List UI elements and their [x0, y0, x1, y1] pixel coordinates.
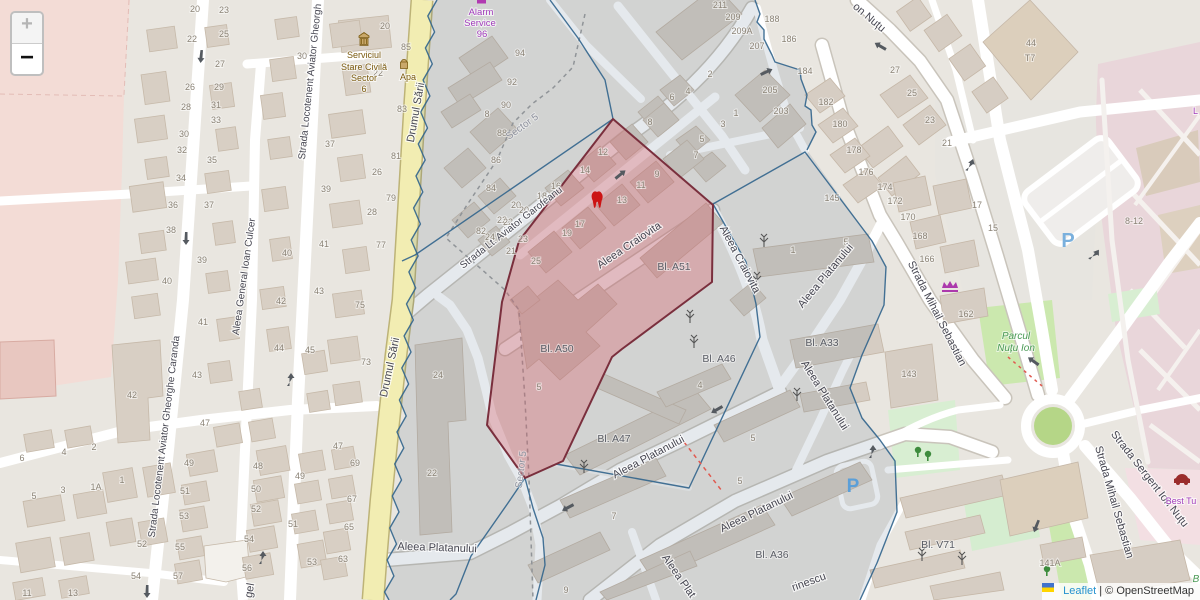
svg-text:188: 188: [764, 14, 779, 24]
svg-text:P: P: [1061, 230, 1074, 252]
svg-text:30: 30: [297, 51, 307, 61]
svg-text:205: 205: [762, 85, 777, 95]
svg-text:29: 29: [214, 82, 224, 92]
svg-text:209: 209: [725, 12, 740, 22]
svg-text:5: 5: [536, 382, 541, 392]
svg-text:172: 172: [887, 196, 902, 206]
svg-text:1: 1: [733, 108, 738, 118]
svg-text:56: 56: [242, 563, 252, 573]
svg-text:77: 77: [376, 240, 386, 250]
svg-text:44: 44: [274, 343, 284, 353]
svg-text:3: 3: [720, 119, 725, 129]
svg-text:50: 50: [251, 484, 261, 494]
svg-text:Best Tu: Best Tu: [1166, 496, 1197, 506]
svg-text:47: 47: [200, 418, 210, 428]
svg-text:6: 6: [669, 92, 674, 102]
svg-text:8: 8: [647, 117, 652, 127]
svg-text:21: 21: [506, 246, 516, 256]
svg-text:25: 25: [907, 88, 917, 98]
svg-text:13: 13: [617, 195, 627, 205]
svg-text:Bl. A47: Bl. A47: [597, 433, 630, 445]
svg-text:30: 30: [179, 129, 189, 139]
svg-text:Alarm: Alarm: [469, 7, 494, 18]
svg-text:7: 7: [693, 150, 698, 160]
svg-text:27: 27: [215, 59, 225, 69]
svg-text:36: 36: [168, 200, 178, 210]
svg-text:86: 86: [491, 155, 501, 165]
svg-text:43: 43: [314, 286, 324, 296]
svg-text:17: 17: [575, 219, 585, 229]
svg-text:178: 178: [846, 145, 861, 155]
svg-text:6: 6: [19, 453, 24, 463]
svg-text:Serviciul: Serviciul: [347, 50, 381, 60]
svg-text:85: 85: [401, 42, 411, 52]
svg-text:12: 12: [598, 147, 608, 157]
svg-text:53: 53: [307, 557, 317, 567]
svg-text:L: L: [1193, 106, 1198, 116]
svg-text:182: 182: [818, 97, 833, 107]
svg-text:40: 40: [162, 276, 172, 286]
svg-text:Bl. A50: Bl. A50: [540, 343, 573, 355]
svg-text:20: 20: [380, 21, 390, 31]
svg-text:41: 41: [319, 239, 329, 249]
svg-text:Parcul: Parcul: [1002, 331, 1031, 342]
svg-text:8: 8: [484, 109, 489, 119]
svg-text:180: 180: [832, 119, 847, 129]
svg-text:207: 207: [749, 41, 764, 51]
svg-text:9: 9: [563, 585, 568, 595]
svg-text:Apa: Apa: [400, 72, 416, 82]
svg-text:22: 22: [187, 34, 197, 44]
svg-text:143: 143: [901, 369, 916, 379]
svg-text:84: 84: [486, 183, 496, 193]
svg-text:53: 53: [179, 511, 189, 521]
svg-text:42: 42: [276, 296, 286, 306]
svg-text:184: 184: [797, 66, 812, 76]
svg-text:26: 26: [372, 167, 382, 177]
svg-text:170: 170: [900, 212, 915, 222]
svg-text:5: 5: [699, 134, 704, 144]
svg-text:79: 79: [386, 193, 396, 203]
svg-text:211: 211: [713, 0, 727, 10]
svg-text:4: 4: [697, 380, 702, 390]
svg-text:73: 73: [361, 357, 371, 367]
svg-text:49: 49: [295, 471, 305, 481]
svg-text:145: 145: [824, 193, 839, 203]
svg-text:Sector: Sector: [351, 73, 377, 83]
svg-text:24: 24: [433, 370, 443, 380]
svg-text:33: 33: [211, 115, 221, 125]
svg-text:162: 162: [958, 309, 973, 319]
svg-text:1: 1: [790, 245, 795, 255]
svg-text:141A: 141A: [1039, 558, 1060, 568]
svg-text:96: 96: [477, 29, 488, 40]
svg-text:65: 65: [344, 522, 354, 532]
svg-text:90: 90: [501, 100, 511, 110]
svg-text:174: 174: [877, 182, 892, 192]
svg-text:T7: T7: [1025, 53, 1036, 63]
svg-text:63: 63: [338, 554, 348, 564]
svg-text:19: 19: [562, 228, 572, 238]
svg-text:14: 14: [580, 165, 590, 175]
svg-text:Service: Service: [464, 18, 496, 29]
svg-text:43: 43: [192, 370, 202, 380]
svg-text:Bl. A46: Bl. A46: [702, 353, 735, 365]
svg-text:26: 26: [185, 82, 195, 92]
svg-text:69: 69: [350, 458, 360, 468]
svg-text:83: 83: [397, 104, 407, 114]
svg-text:2: 2: [91, 442, 96, 452]
svg-text:17: 17: [972, 200, 982, 210]
svg-text:49: 49: [184, 458, 194, 468]
svg-text:1A: 1A: [90, 482, 101, 492]
svg-text:203: 203: [773, 106, 788, 116]
svg-text:28: 28: [367, 207, 377, 217]
svg-text:34: 34: [176, 173, 186, 183]
svg-text:48: 48: [253, 461, 263, 471]
svg-text:37: 37: [204, 200, 214, 210]
svg-text:168: 168: [912, 231, 927, 241]
svg-text:40: 40: [282, 248, 292, 258]
svg-text:Bl. A33: Bl. A33: [805, 337, 838, 349]
svg-text:20: 20: [190, 4, 200, 14]
svg-text:32: 32: [177, 145, 187, 155]
svg-text:176: 176: [858, 167, 873, 177]
svg-text:51: 51: [180, 486, 190, 496]
svg-text:209A: 209A: [731, 26, 752, 36]
svg-text:P: P: [847, 476, 860, 497]
svg-text:51: 51: [288, 519, 298, 529]
svg-text:5: 5: [737, 476, 742, 486]
svg-text:39: 39: [197, 255, 207, 265]
svg-text:57: 57: [173, 571, 183, 581]
svg-text:11: 11: [636, 180, 645, 190]
svg-text:Bl. V71: Bl. V71: [921, 539, 955, 551]
svg-text:27: 27: [890, 65, 900, 75]
svg-text:4: 4: [61, 447, 66, 457]
svg-text:47: 47: [333, 441, 343, 451]
svg-text:67: 67: [347, 494, 357, 504]
svg-text:gel: gel: [243, 582, 257, 599]
svg-text:35: 35: [207, 155, 217, 165]
svg-text:44: 44: [1026, 38, 1036, 48]
svg-text:94: 94: [515, 48, 525, 58]
svg-text:52: 52: [137, 539, 147, 549]
svg-text:3: 3: [60, 485, 65, 495]
svg-text:23: 23: [925, 115, 935, 125]
svg-text:23: 23: [518, 234, 528, 244]
svg-text:45: 45: [305, 345, 315, 355]
svg-text:2: 2: [707, 69, 712, 79]
svg-text:92: 92: [507, 77, 517, 87]
svg-text:9: 9: [654, 169, 659, 179]
svg-text:166: 166: [919, 254, 934, 264]
svg-text:54: 54: [244, 534, 254, 544]
svg-text:Nuțu Ion: Nuțu Ion: [997, 343, 1035, 354]
svg-text:81: 81: [391, 151, 401, 161]
svg-text:42: 42: [127, 390, 137, 400]
svg-text:Bl. A51: Bl. A51: [657, 261, 690, 273]
svg-text:41: 41: [198, 317, 208, 327]
svg-text:4: 4: [685, 86, 690, 96]
svg-text:1: 1: [119, 475, 124, 485]
svg-text:5: 5: [31, 491, 36, 501]
svg-text:39: 39: [321, 184, 331, 194]
svg-text:55: 55: [175, 542, 185, 552]
svg-text:7: 7: [611, 511, 616, 521]
svg-text:21: 21: [942, 138, 952, 148]
svg-text:5: 5: [750, 433, 755, 443]
svg-text:13: 13: [68, 588, 78, 598]
svg-text:Bl. A36: Bl. A36: [755, 549, 788, 561]
svg-text:22: 22: [427, 468, 437, 478]
svg-text:15: 15: [988, 223, 998, 233]
svg-text:11: 11: [22, 588, 31, 598]
svg-text:28: 28: [181, 102, 191, 112]
svg-text:6: 6: [361, 84, 366, 94]
svg-text:8-12: 8-12: [1125, 216, 1143, 226]
svg-text:38: 38: [166, 225, 176, 235]
svg-text:23: 23: [219, 5, 229, 15]
svg-text:25: 25: [219, 29, 229, 39]
svg-text:75: 75: [355, 300, 365, 310]
svg-text:25: 25: [531, 256, 541, 266]
svg-text:54: 54: [131, 571, 141, 581]
svg-text:37: 37: [325, 139, 335, 149]
svg-text:52: 52: [251, 504, 261, 514]
svg-text:186: 186: [781, 34, 796, 44]
svg-text:31: 31: [211, 100, 221, 110]
svg-text:Stare Civilă: Stare Civilă: [341, 62, 387, 72]
